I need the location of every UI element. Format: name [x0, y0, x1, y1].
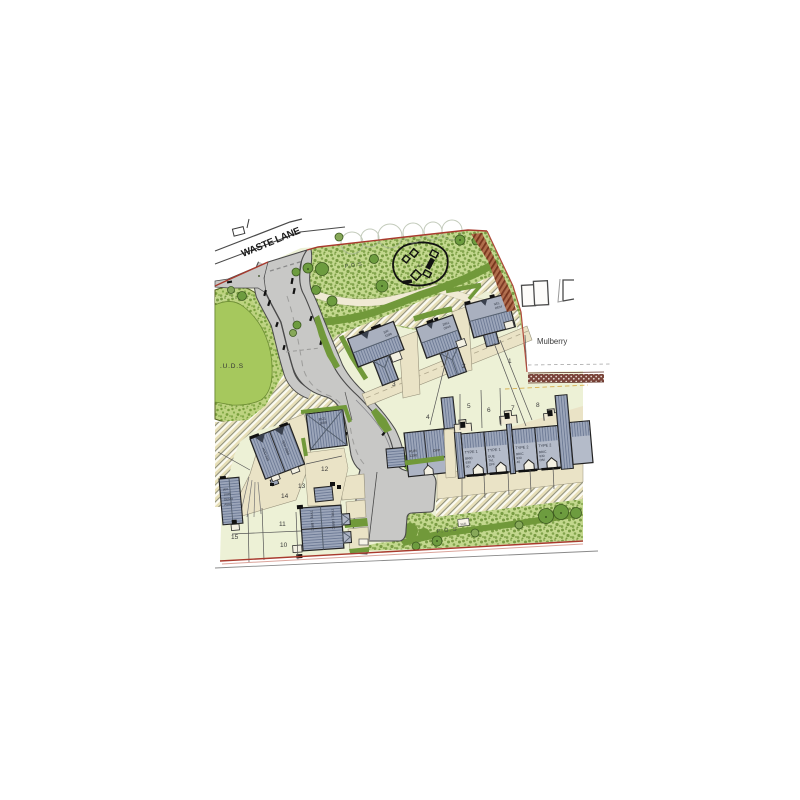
- svg-text:1290: 1290: [409, 453, 417, 458]
- svg-text:.U.D.S: .U.D.S: [220, 363, 244, 370]
- svg-text:4: 4: [426, 414, 430, 421]
- svg-text:14: 14: [281, 493, 289, 500]
- svg-text:Mulberry: Mulberry: [537, 337, 567, 346]
- svg-text:8: 8: [536, 402, 540, 409]
- svg-text:A.P: A.P: [417, 263, 424, 268]
- svg-text:5: 5: [467, 403, 471, 410]
- svg-text:15: 15: [231, 534, 239, 541]
- svg-text:1: 1: [508, 358, 512, 365]
- svg-text:13: 13: [298, 483, 306, 490]
- svg-text:10: 10: [280, 542, 288, 549]
- svg-text:OPP: OPP: [433, 448, 441, 453]
- svg-text:40: 40: [466, 464, 470, 468]
- svg-text:OEM9: OEM9: [224, 497, 234, 502]
- svg-text:SUB: SUB: [460, 522, 467, 527]
- svg-text:3: 3: [392, 381, 396, 388]
- svg-text:OFF: OFF: [489, 462, 496, 467]
- svg-text:1005: 1005: [223, 492, 231, 497]
- svg-text:2: 2: [462, 363, 466, 370]
- svg-text:11: 11: [279, 521, 286, 528]
- svg-text:6: 6: [487, 407, 491, 414]
- svg-text:45: 45: [517, 460, 521, 464]
- svg-text:12: 12: [321, 466, 329, 473]
- svg-text:AVAL: AVAL: [224, 502, 232, 507]
- svg-text:7: 7: [511, 405, 515, 412]
- svg-text:OM: OM: [539, 458, 545, 462]
